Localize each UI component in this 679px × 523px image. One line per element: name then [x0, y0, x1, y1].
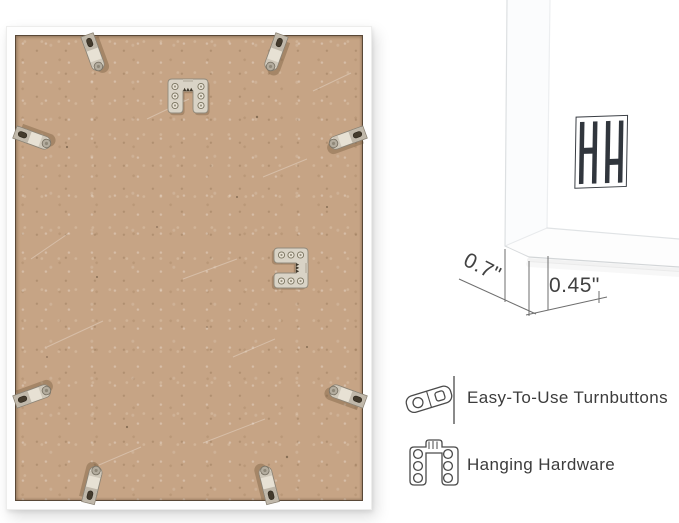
turnbutton-hardware [323, 382, 368, 412]
turnbutton-icon [401, 372, 463, 430]
frame-back-hardware [7, 27, 373, 511]
frame-corner-closeup [395, 0, 679, 345]
feature-label: Hanging Hardware [467, 455, 615, 475]
frame-front-face [547, 0, 679, 239]
turnbutton-hardware [262, 33, 292, 78]
product-infographic: 0.7" 0.45" Easy-To-Use Turnbuttons [0, 0, 679, 523]
turnbutton-hardware [253, 461, 279, 505]
turnbutton-hardware [13, 122, 58, 152]
turnbutton-hardware [78, 460, 104, 504]
mdf-texture-specks [46, 86, 328, 458]
hanging-hardware [272, 248, 308, 290]
turnbutton-hardware [81, 31, 111, 76]
hanging-hardware [168, 79, 210, 115]
turnbutton-hardware [11, 378, 56, 408]
hanging-hardware-icon [404, 436, 462, 490]
frame-back-photo [6, 26, 372, 510]
turnbutton-hardware [324, 126, 369, 156]
feature-label: Easy-To-Use Turnbuttons [467, 388, 668, 408]
face-width-dimension-label: 0.45" [549, 275, 600, 296]
frame-side-face [505, 0, 550, 246]
